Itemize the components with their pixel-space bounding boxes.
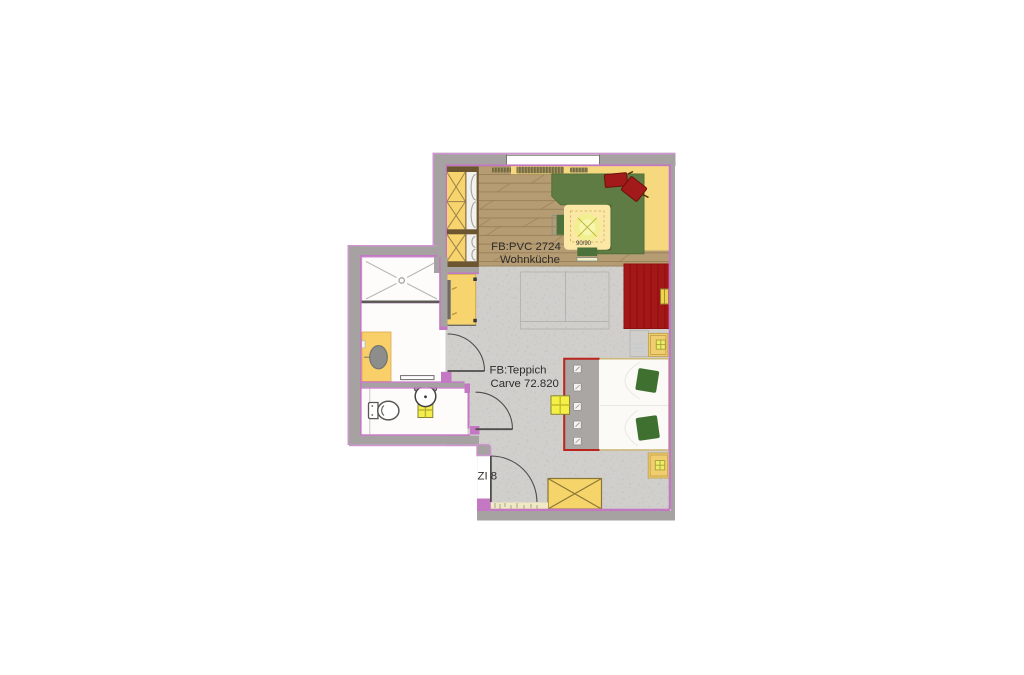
svg-text:ZI 8: ZI 8 xyxy=(478,471,498,483)
svg-text:90/90: 90/90 xyxy=(576,241,592,247)
svg-text:Wohnküche: Wohnküche xyxy=(500,254,560,266)
svg-text:FB:Teppich: FB:Teppich xyxy=(490,365,547,377)
svg-text:Carve 72.820: Carve 72.820 xyxy=(491,378,559,390)
svg-text:FB:PVC 2724: FB:PVC 2724 xyxy=(491,241,561,253)
